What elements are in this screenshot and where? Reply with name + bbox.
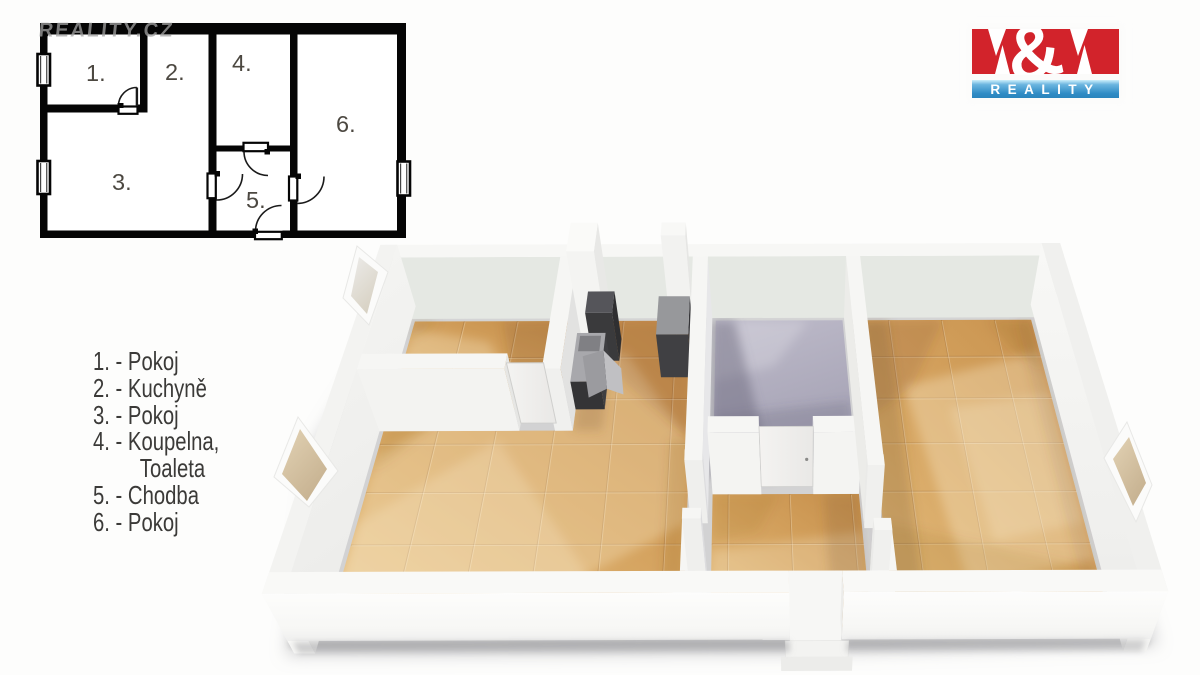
svg-text:REALITY.CZ: REALITY.CZ (38, 20, 176, 42)
svg-text:1.: 1. (86, 60, 106, 86)
svg-text:4.: 4. (232, 50, 252, 76)
svg-text:REALITY: REALITY (990, 82, 1100, 97)
svg-text:2.: 2. (165, 59, 185, 85)
svg-text:5.: 5. (246, 187, 266, 213)
svg-text:3.: 3. (112, 169, 132, 195)
svg-text:6.: 6. (336, 111, 356, 137)
